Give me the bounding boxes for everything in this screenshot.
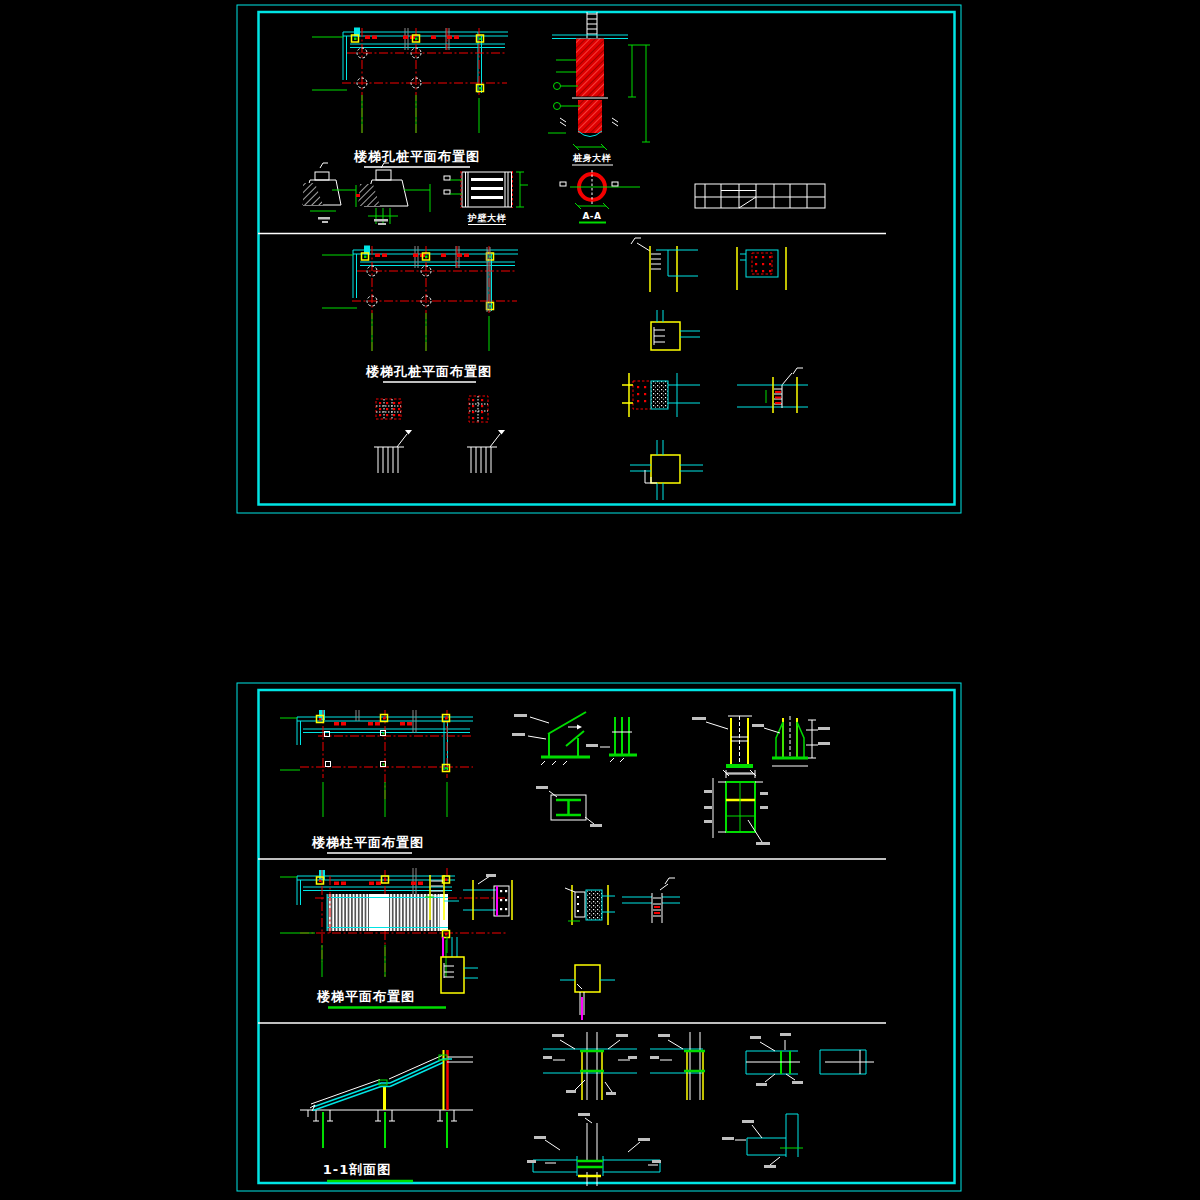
label-wall-lining: 护壁大样 [467,213,507,223]
label-section-aa: A-A [582,211,601,221]
sheet2-drawing: 楼梯柱平面布置图 [236,682,964,1194]
cad-canvas: 楼梯孔桩平面布置图 楼梯孔桩平面布置图 护壁大样 [0,0,1200,1200]
sheet1-drawing: 楼梯孔桩平面布置图 楼梯孔桩平面布置图 护壁大样 [236,4,964,516]
stair-joint-detail-3 [565,885,615,925]
title-section-1-1: 1-1剖面图 [323,1162,392,1177]
joint-detail-5 [737,368,808,413]
pile-body-detail: 桩身大样 [548,12,650,165]
hbeam-section-detail [536,786,602,827]
label-pile-detail: 桩身大样 [572,153,612,163]
cross-joint-detail [527,1113,661,1186]
stair-joint-detail-6 [560,965,615,1020]
pile-cap-plan-2 [469,396,488,422]
sheet2-frame [237,683,961,1191]
sheet1-upper-plan [312,28,508,134]
beam-splice-detail [746,1033,803,1086]
pile-circles [357,48,421,88]
brace-detail [512,712,590,765]
beam-column-joint-2 [650,1032,705,1100]
pile-symbol-2 [467,430,505,473]
stair-column-plan [280,710,473,817]
beam-column-joint-1 [543,1032,637,1100]
section-1-1 [300,1050,473,1148]
stair-joint-detail-2 [463,874,512,920]
title-upper-plan: 楼梯孔桩平面布置图 [353,149,480,164]
title-column-plan: 楼梯柱平面布置图 [311,835,424,850]
joint-detail-2 [737,247,786,290]
joint-detail-4 [622,373,700,417]
title-stair-plan: 楼梯平面布置图 [316,989,415,1004]
footing-detail-b [356,163,430,225]
post-detail [586,717,637,762]
pile-symbol-1 [374,430,412,473]
beam-end-detail [820,1050,874,1074]
column-base-detail-1 [692,716,756,776]
joint-detail-1 [631,238,698,292]
footing-detail-a [303,163,356,223]
stair-joint-detail-4 [622,878,680,923]
joint-detail-6 [630,440,703,500]
beam-corner-detail [722,1114,803,1168]
base-plate-plan [704,770,770,845]
column-base-detail-2 [752,716,830,766]
joint-detail-3 [651,310,700,350]
stair-plan [280,868,508,977]
title-lower-plan: 楼梯孔桩平面布置图 [365,364,492,379]
schedule-table [695,184,825,208]
stair-joint-detail-5 [441,937,478,993]
section-aa: A-A [560,170,640,223]
wall-lining-detail: 护壁大样 [444,171,528,225]
pile-cap-plan-1 [376,399,401,419]
